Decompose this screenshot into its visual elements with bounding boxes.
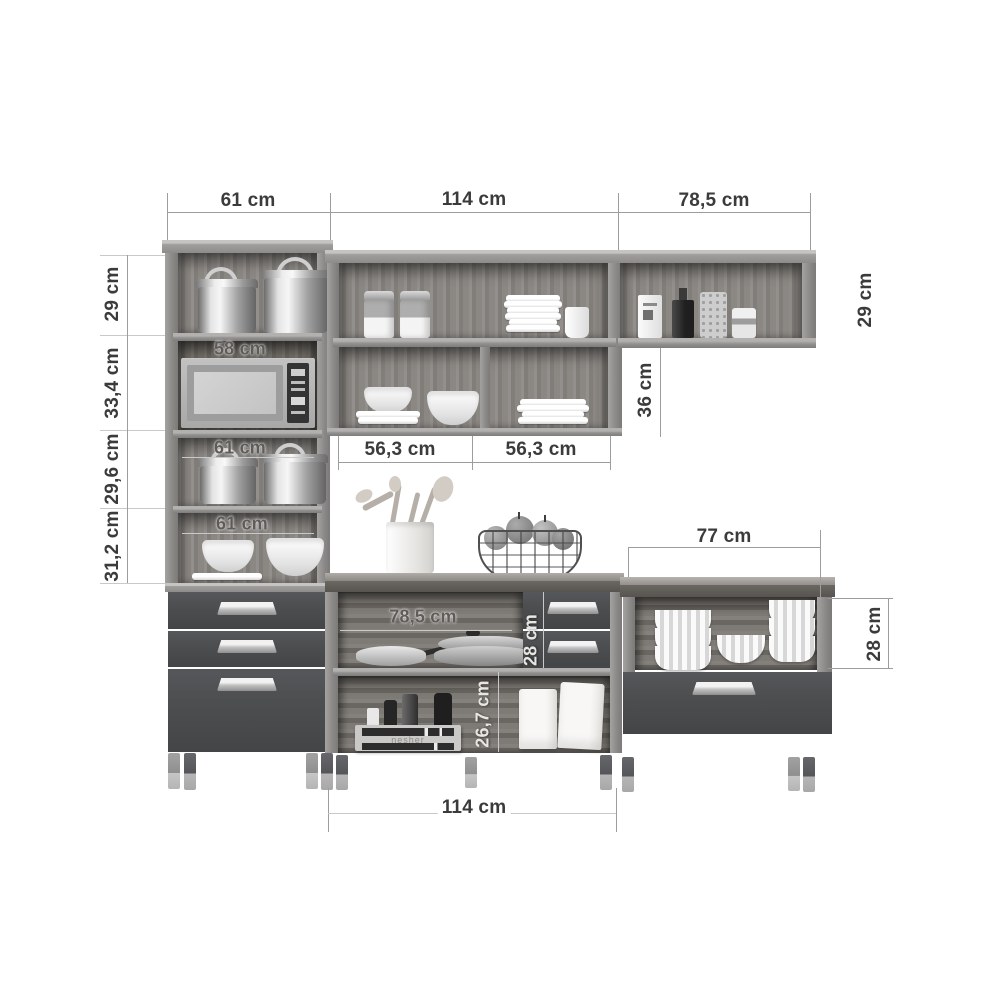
cabinet-side [165,253,178,583]
plate-stack [504,295,562,331]
plate-stack [517,399,589,423]
striped-bowl [717,637,765,663]
dim-s3-width: 61 cm [214,438,266,459]
ext-line [100,430,167,431]
dim-tall-s1-height: 29 cm [102,267,124,322]
utensil-crock [386,522,434,574]
stock-pot [200,466,256,504]
ext-line [828,668,893,669]
glass-jar [364,300,394,338]
bowl [202,540,254,572]
dim-lower-niche-height: 26,7 cm [473,680,494,747]
bottom-board [618,338,816,348]
microwave-button [291,388,305,391]
ext-line [628,547,629,577]
carton [638,295,662,338]
wall-cabinet-middle [327,250,622,436]
dim-tall-width: 61 cm [221,190,276,212]
ramekin-stack [769,602,815,662]
deep-drawer [623,672,832,734]
leg [465,757,477,788]
dim-s4-width: 61 cm [216,514,268,535]
kitchen-dimension-diagram: 61 cm 114 cm 78,5 cm 29 cm 33,4 cm 29,6 … [0,0,1000,1000]
dim-wall-right-height: 29 cm [855,273,877,328]
ext-line [618,193,619,258]
ext-line [338,436,339,470]
leg [321,753,333,790]
dim-tall-s2-height: 33,4 cm [102,347,124,418]
bowl [266,538,324,576]
dimension-line [660,348,661,437]
leg [803,757,815,792]
bowl [427,391,479,425]
ext-line [820,530,821,600]
dim-micro-niche-width: 58 cm [214,339,266,360]
stock-pot [264,462,326,504]
patterned-jar [700,292,727,338]
drawer-handle [217,640,277,653]
dimension-line [127,255,128,583]
dim-comp-left: 56,3 cm [364,439,435,461]
ext-line [100,255,167,256]
microwave-keypad [291,397,305,405]
ext-line [810,193,811,250]
cabinet-side [802,263,816,338]
shelf-board [173,506,322,513]
microwave-door [187,365,283,421]
stock-pot [198,287,256,333]
microwave-window [194,372,276,414]
countertop [620,577,835,597]
dim-counter-width: 114 cm [438,797,511,819]
cabinet-top-board [325,250,624,263]
stock-pot [264,278,328,333]
ramekin-stack [655,612,711,670]
countertop [325,573,624,592]
microwave-display [291,369,305,376]
dim-pan-niche-width: 78,5 cm [389,607,456,628]
dimension-line [340,630,512,631]
cup [565,307,589,338]
carton-label [643,310,653,320]
leg [788,757,800,791]
glass-jar [400,300,430,338]
mid-board [333,668,620,676]
cabinet-top-board [162,240,333,253]
dim-tall-s3-height: 29,6 cm [102,433,124,504]
ext-line [472,436,473,470]
saucer [192,573,262,580]
saucer-stack [356,411,420,423]
carton-label [643,303,657,306]
cabinet-side [327,263,339,436]
microwave-panel [287,363,309,423]
dim-comp-right: 56,3 cm [505,439,576,461]
leg [184,753,196,790]
divider [480,347,490,428]
dimension-line [167,212,810,213]
ext-line [100,335,167,336]
dimension-line [498,672,499,752]
ext-line [616,788,617,832]
leg [306,753,318,789]
microwave [181,358,315,428]
wall-cabinet-right [618,250,816,348]
drawer-handle [217,602,277,615]
dimension-line [888,598,889,668]
dimension-line [543,592,544,668]
dim-wall-drop: 36 cm [635,363,657,418]
dim-base-right-width: 77 cm [697,526,752,548]
bowl [364,387,412,413]
saucepan [356,646,426,666]
paper-bag [557,682,604,750]
leg [168,753,180,789]
cabinet-top-board [618,250,816,263]
microwave-button [291,411,305,414]
carcass-band [165,583,330,592]
lower-shelf-niche [339,347,608,428]
upper-shelf-niche [339,263,608,338]
leg [600,755,612,790]
ext-line [100,508,167,509]
drawer-handle [547,641,599,653]
bottom-board [327,428,622,436]
dim-wall-mid-width: 114 cm [442,189,507,211]
crate-brand-text: nesher [355,735,461,745]
ext-line [828,598,893,599]
ext-line [100,583,167,584]
dim-mid-drawer-height: 28 cm [521,614,542,666]
paper-bag [519,689,557,749]
dim-right-niche-height: 28 cm [864,607,886,662]
drawer-handle [547,602,599,614]
frying-pan [434,646,534,666]
microwave-button [291,381,305,384]
bottle [672,300,694,338]
leg [336,755,348,790]
dim-wall-right-width: 78,5 cm [678,190,749,212]
shelf-niche [178,253,317,333]
small-jar [732,308,756,338]
ext-line [328,788,329,832]
wooden-crate: nesher [355,725,461,751]
dimension-line [338,462,610,463]
drawer-handle [692,682,756,695]
shelf-board [333,338,616,347]
bowl-niche [635,597,817,670]
shelf-niche [620,263,802,338]
base-cabinet-right [620,577,835,757]
ext-line [610,436,611,470]
ext-line [167,193,168,240]
leg [622,757,634,792]
drawer-handle [217,678,277,691]
dim-tall-s4-height: 31,2 cm [102,510,124,581]
